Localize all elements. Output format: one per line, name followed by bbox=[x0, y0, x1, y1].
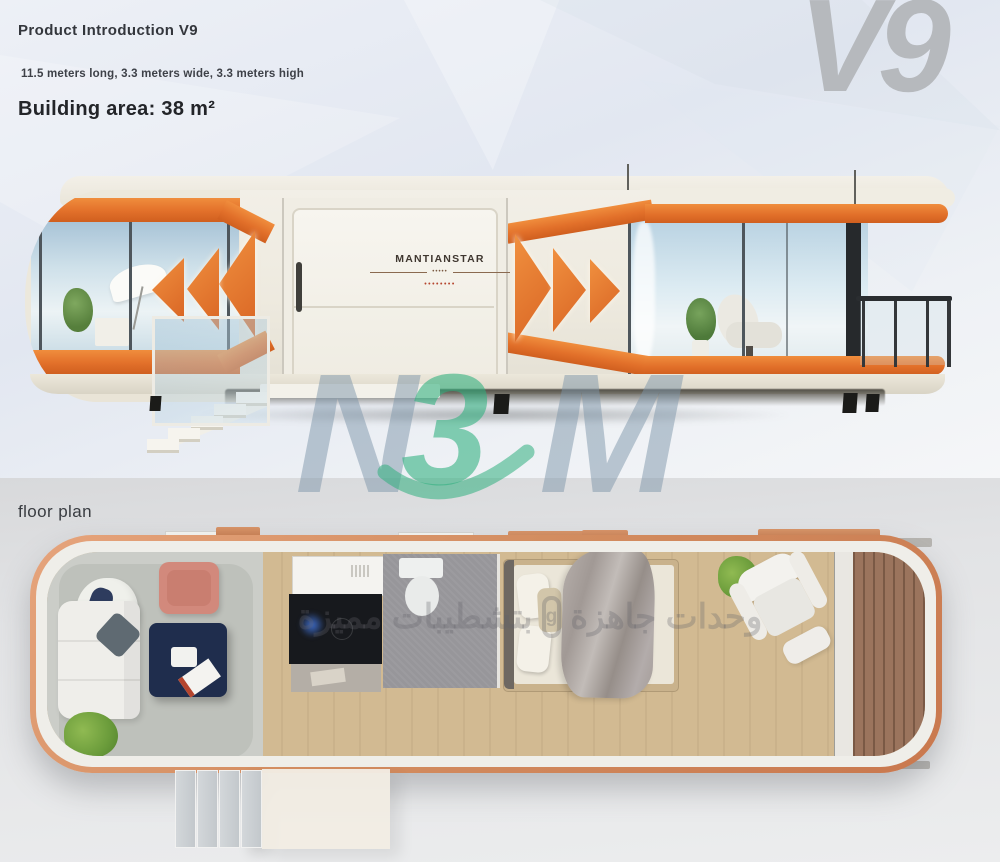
n3m-logo-watermark: N 3 M bbox=[283, 336, 707, 541]
logo-letter-m: M bbox=[539, 339, 684, 529]
glyph-letter: g bbox=[546, 606, 558, 628]
arabic-watermark-tail: بتشطيبات مميزة bbox=[298, 597, 533, 637]
floor-plan-label: floor plan bbox=[18, 502, 92, 522]
entrance-platform bbox=[262, 769, 390, 849]
dimensions-line: 11.5 meters long, 3.3 meters wide, 3.3 m… bbox=[21, 68, 304, 80]
product-sheet: V9 Product Introduction V9 11.5 meters l… bbox=[0, 0, 1000, 862]
stair-step bbox=[241, 770, 262, 848]
watermark-logo-glyph: g bbox=[542, 596, 562, 638]
arabic-watermark: وحدات جاهزة g بتشطيبات مميزة bbox=[300, 592, 760, 642]
product-title: Product Introduction V9 bbox=[18, 22, 198, 39]
stair-step bbox=[197, 770, 218, 848]
building-area: Building area: 38 m² bbox=[18, 98, 215, 121]
arabic-watermark-lead: وحدات جاهزة bbox=[570, 597, 762, 637]
stair-step bbox=[219, 770, 240, 848]
stair-step bbox=[175, 770, 196, 848]
